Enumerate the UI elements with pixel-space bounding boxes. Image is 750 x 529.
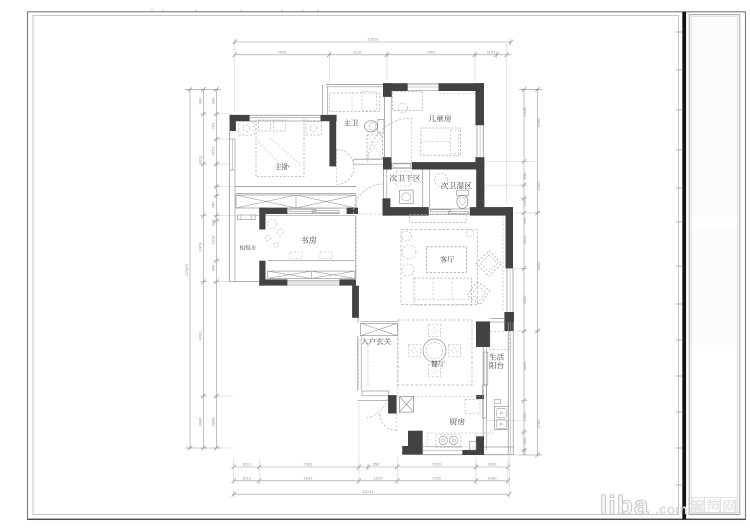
svg-text:4230: 4230 xyxy=(198,331,203,341)
svg-text:1000: 1000 xyxy=(536,181,541,191)
svg-text:3050: 3050 xyxy=(522,361,527,371)
svg-text:330: 330 xyxy=(211,219,216,226)
svg-text:900: 900 xyxy=(211,97,216,104)
svg-text:2080: 2080 xyxy=(522,295,527,305)
svg-text:10741: 10741 xyxy=(362,489,374,494)
svg-text:2479: 2479 xyxy=(198,242,203,252)
svg-text:7020: 7020 xyxy=(432,462,442,467)
svg-text:1000: 1000 xyxy=(488,462,498,467)
svg-text:600: 600 xyxy=(522,437,527,444)
svg-text:4050: 4050 xyxy=(536,261,541,271)
svg-text:3940: 3940 xyxy=(211,417,216,427)
svg-text:3940: 3940 xyxy=(198,417,203,427)
svg-text:1300: 1300 xyxy=(522,412,527,422)
svg-text:780: 780 xyxy=(211,201,216,208)
svg-text:1010: 1010 xyxy=(242,475,252,480)
svg-text:940: 940 xyxy=(522,172,527,179)
svg-text:1518: 1518 xyxy=(522,107,527,117)
svg-text:liba: liba xyxy=(600,490,650,520)
svg-text:1219: 1219 xyxy=(211,235,216,245)
svg-text:2110: 2110 xyxy=(353,49,362,54)
svg-text:7001: 7001 xyxy=(304,475,314,480)
svg-text:10510: 10510 xyxy=(367,37,379,42)
svg-text:7061: 7061 xyxy=(304,462,314,467)
svg-text:250: 250 xyxy=(522,448,527,455)
svg-text:1010: 1010 xyxy=(242,462,252,467)
svg-text:7643: 7643 xyxy=(278,49,288,54)
svg-text:900: 900 xyxy=(198,97,203,104)
svg-text:1191: 1191 xyxy=(487,49,496,54)
svg-text:3313: 3313 xyxy=(198,155,203,165)
svg-text:2750: 2750 xyxy=(536,419,541,429)
svg-text:17920: 17920 xyxy=(184,264,189,276)
svg-text:600: 600 xyxy=(211,264,216,271)
svg-text:950: 950 xyxy=(373,462,380,467)
svg-text:1510: 1510 xyxy=(373,475,383,480)
svg-text:730: 730 xyxy=(522,199,527,206)
svg-text:.com: .com xyxy=(655,501,688,517)
svg-text:7401: 7401 xyxy=(427,49,437,54)
svg-text:1611: 1611 xyxy=(522,235,527,244)
svg-text:1000: 1000 xyxy=(488,475,498,480)
svg-text:7020: 7020 xyxy=(432,475,442,480)
svg-text:4771: 4771 xyxy=(211,146,216,156)
svg-text:4790: 4790 xyxy=(536,118,541,128)
svg-text:295: 295 xyxy=(522,217,527,224)
svg-text:781: 781 xyxy=(211,122,216,129)
